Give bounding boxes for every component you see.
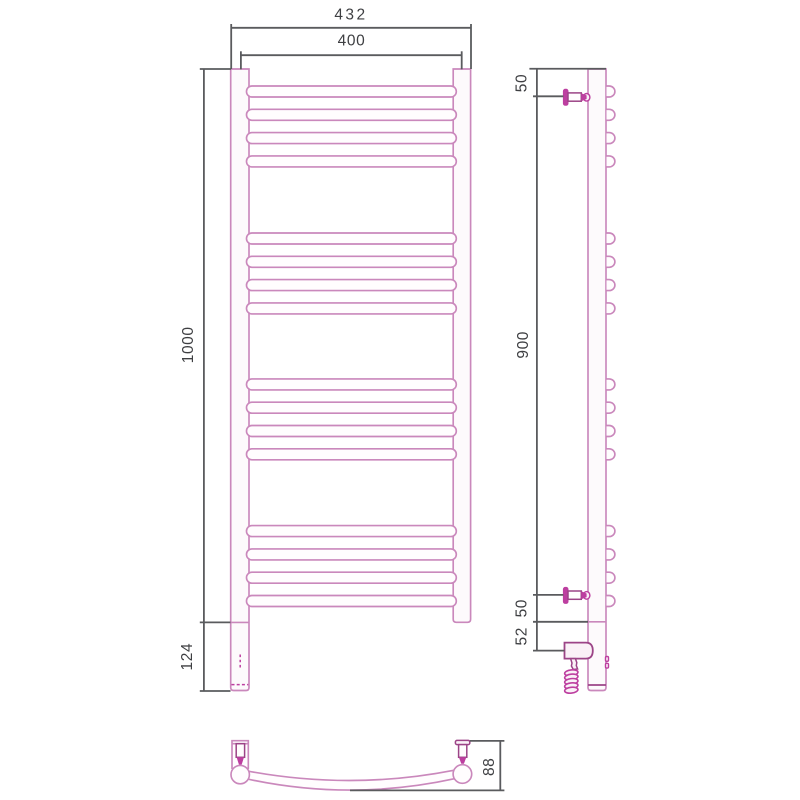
svg-text:400: 400 <box>338 33 366 50</box>
svg-text:124: 124 <box>179 643 196 671</box>
svg-text:1000: 1000 <box>180 326 197 363</box>
svg-text:52: 52 <box>513 627 530 645</box>
svg-text:432: 432 <box>334 7 367 24</box>
svg-text:900: 900 <box>515 331 532 359</box>
svg-text:50: 50 <box>513 74 530 92</box>
svg-text:88: 88 <box>481 758 498 776</box>
svg-text:50: 50 <box>513 599 530 617</box>
